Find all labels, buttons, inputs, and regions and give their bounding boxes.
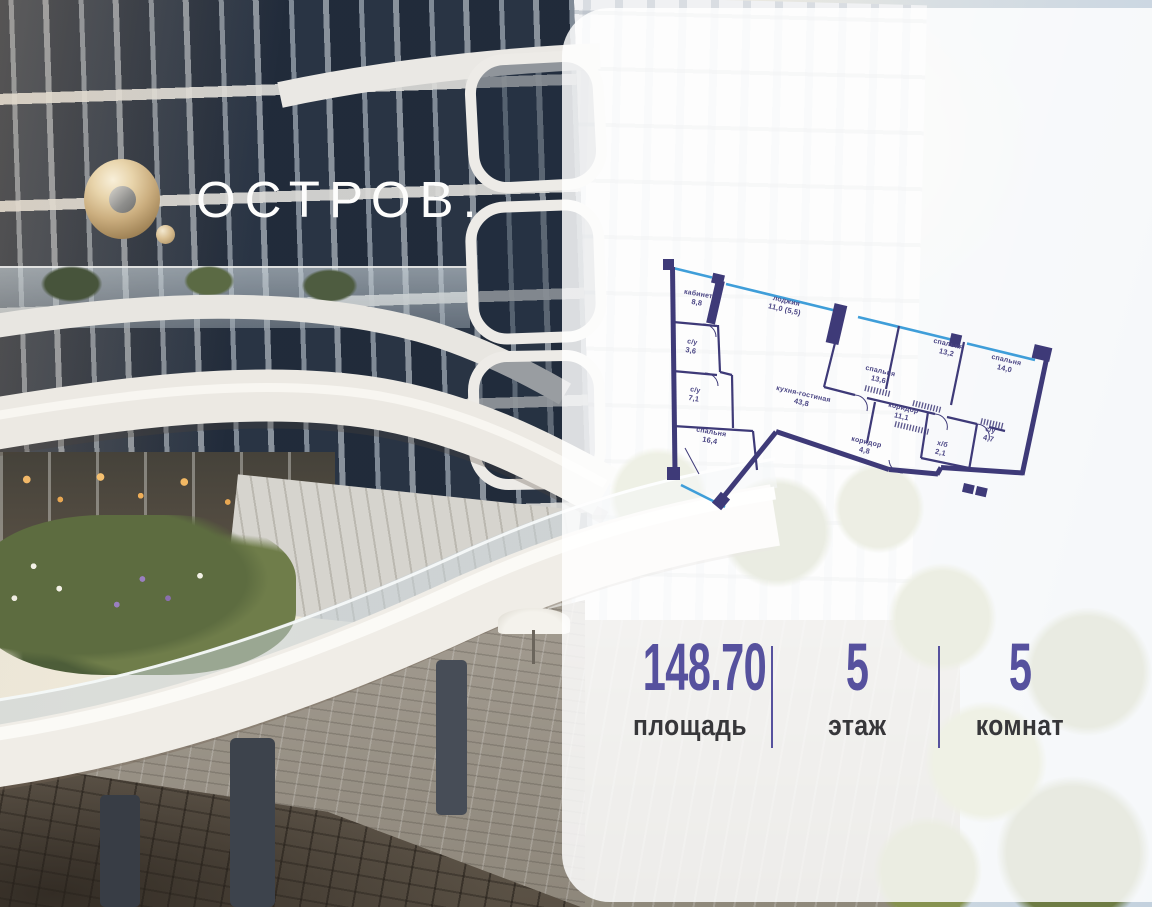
room-label: коридор11,1 [886, 402, 919, 424]
stat-area-label: площадь [605, 710, 775, 743]
stat-floor-value: 5 [846, 640, 868, 696]
room-label: х/б2,1 [934, 439, 949, 458]
room-label: с/у3,6 [685, 338, 698, 356]
room-label: спальня14,0 [989, 354, 1022, 376]
stat-area: 148.70 площадь [605, 640, 775, 743]
stat-rooms-label: комнат [935, 710, 1105, 743]
room-label: лоджия11,0 (5,5) [767, 294, 803, 317]
room-label: с/у4,7 [982, 426, 996, 444]
stat-area-value: 148.70 [643, 640, 766, 696]
floorplan: кабинет8,8лоджия11,0 (5,5)с/у3,6с/у7,1сп… [645, 238, 1065, 558]
stat-floor-label: этаж [772, 710, 942, 743]
brand-wordmark: ОСТРОВ. [196, 174, 486, 225]
room-label: коридор4,8 [849, 436, 882, 458]
page: { "brand": { "wordmark": "ОСТРОВ." }, "c… [0, 0, 1152, 907]
apartment-card[interactable]: кабинет8,8лоджия11,0 (5,5)с/у3,6с/у7,1сп… [562, 8, 1152, 902]
stat-rooms: 5 комнат [935, 640, 1105, 743]
room-label: кухня-гостиная43,8 [773, 385, 831, 413]
brand-ring-icon [84, 159, 160, 239]
room-label: кабинет8,8 [682, 288, 714, 310]
cafe-umbrella [498, 608, 570, 634]
room-label: с/у7,1 [688, 386, 701, 404]
stat-rooms-value: 5 [1009, 640, 1031, 696]
brand-logo: ОСТРОВ. [84, 159, 486, 239]
stat-floor: 5 этаж [772, 640, 942, 743]
brand-dot-icon [156, 225, 175, 244]
